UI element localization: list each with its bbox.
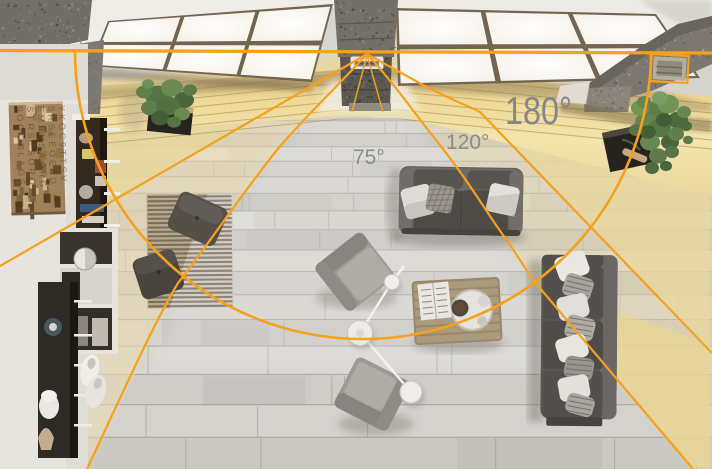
- svg-text:9OOOBLAGS: 9OOOBLAGS: [15, 106, 27, 187]
- svg-text:YKOC9TTSV: YKOC9TTSV: [57, 105, 69, 184]
- svg-text:STRSTSORO: STRSTSORO: [25, 106, 37, 187]
- svg-text:120°: 120°: [446, 131, 489, 154]
- svg-text:75°: 75°: [353, 146, 385, 169]
- svg-text:SRSEEOEAD: SRSEEOEAD: [46, 105, 58, 186]
- svg-text:180°: 180°: [505, 90, 572, 133]
